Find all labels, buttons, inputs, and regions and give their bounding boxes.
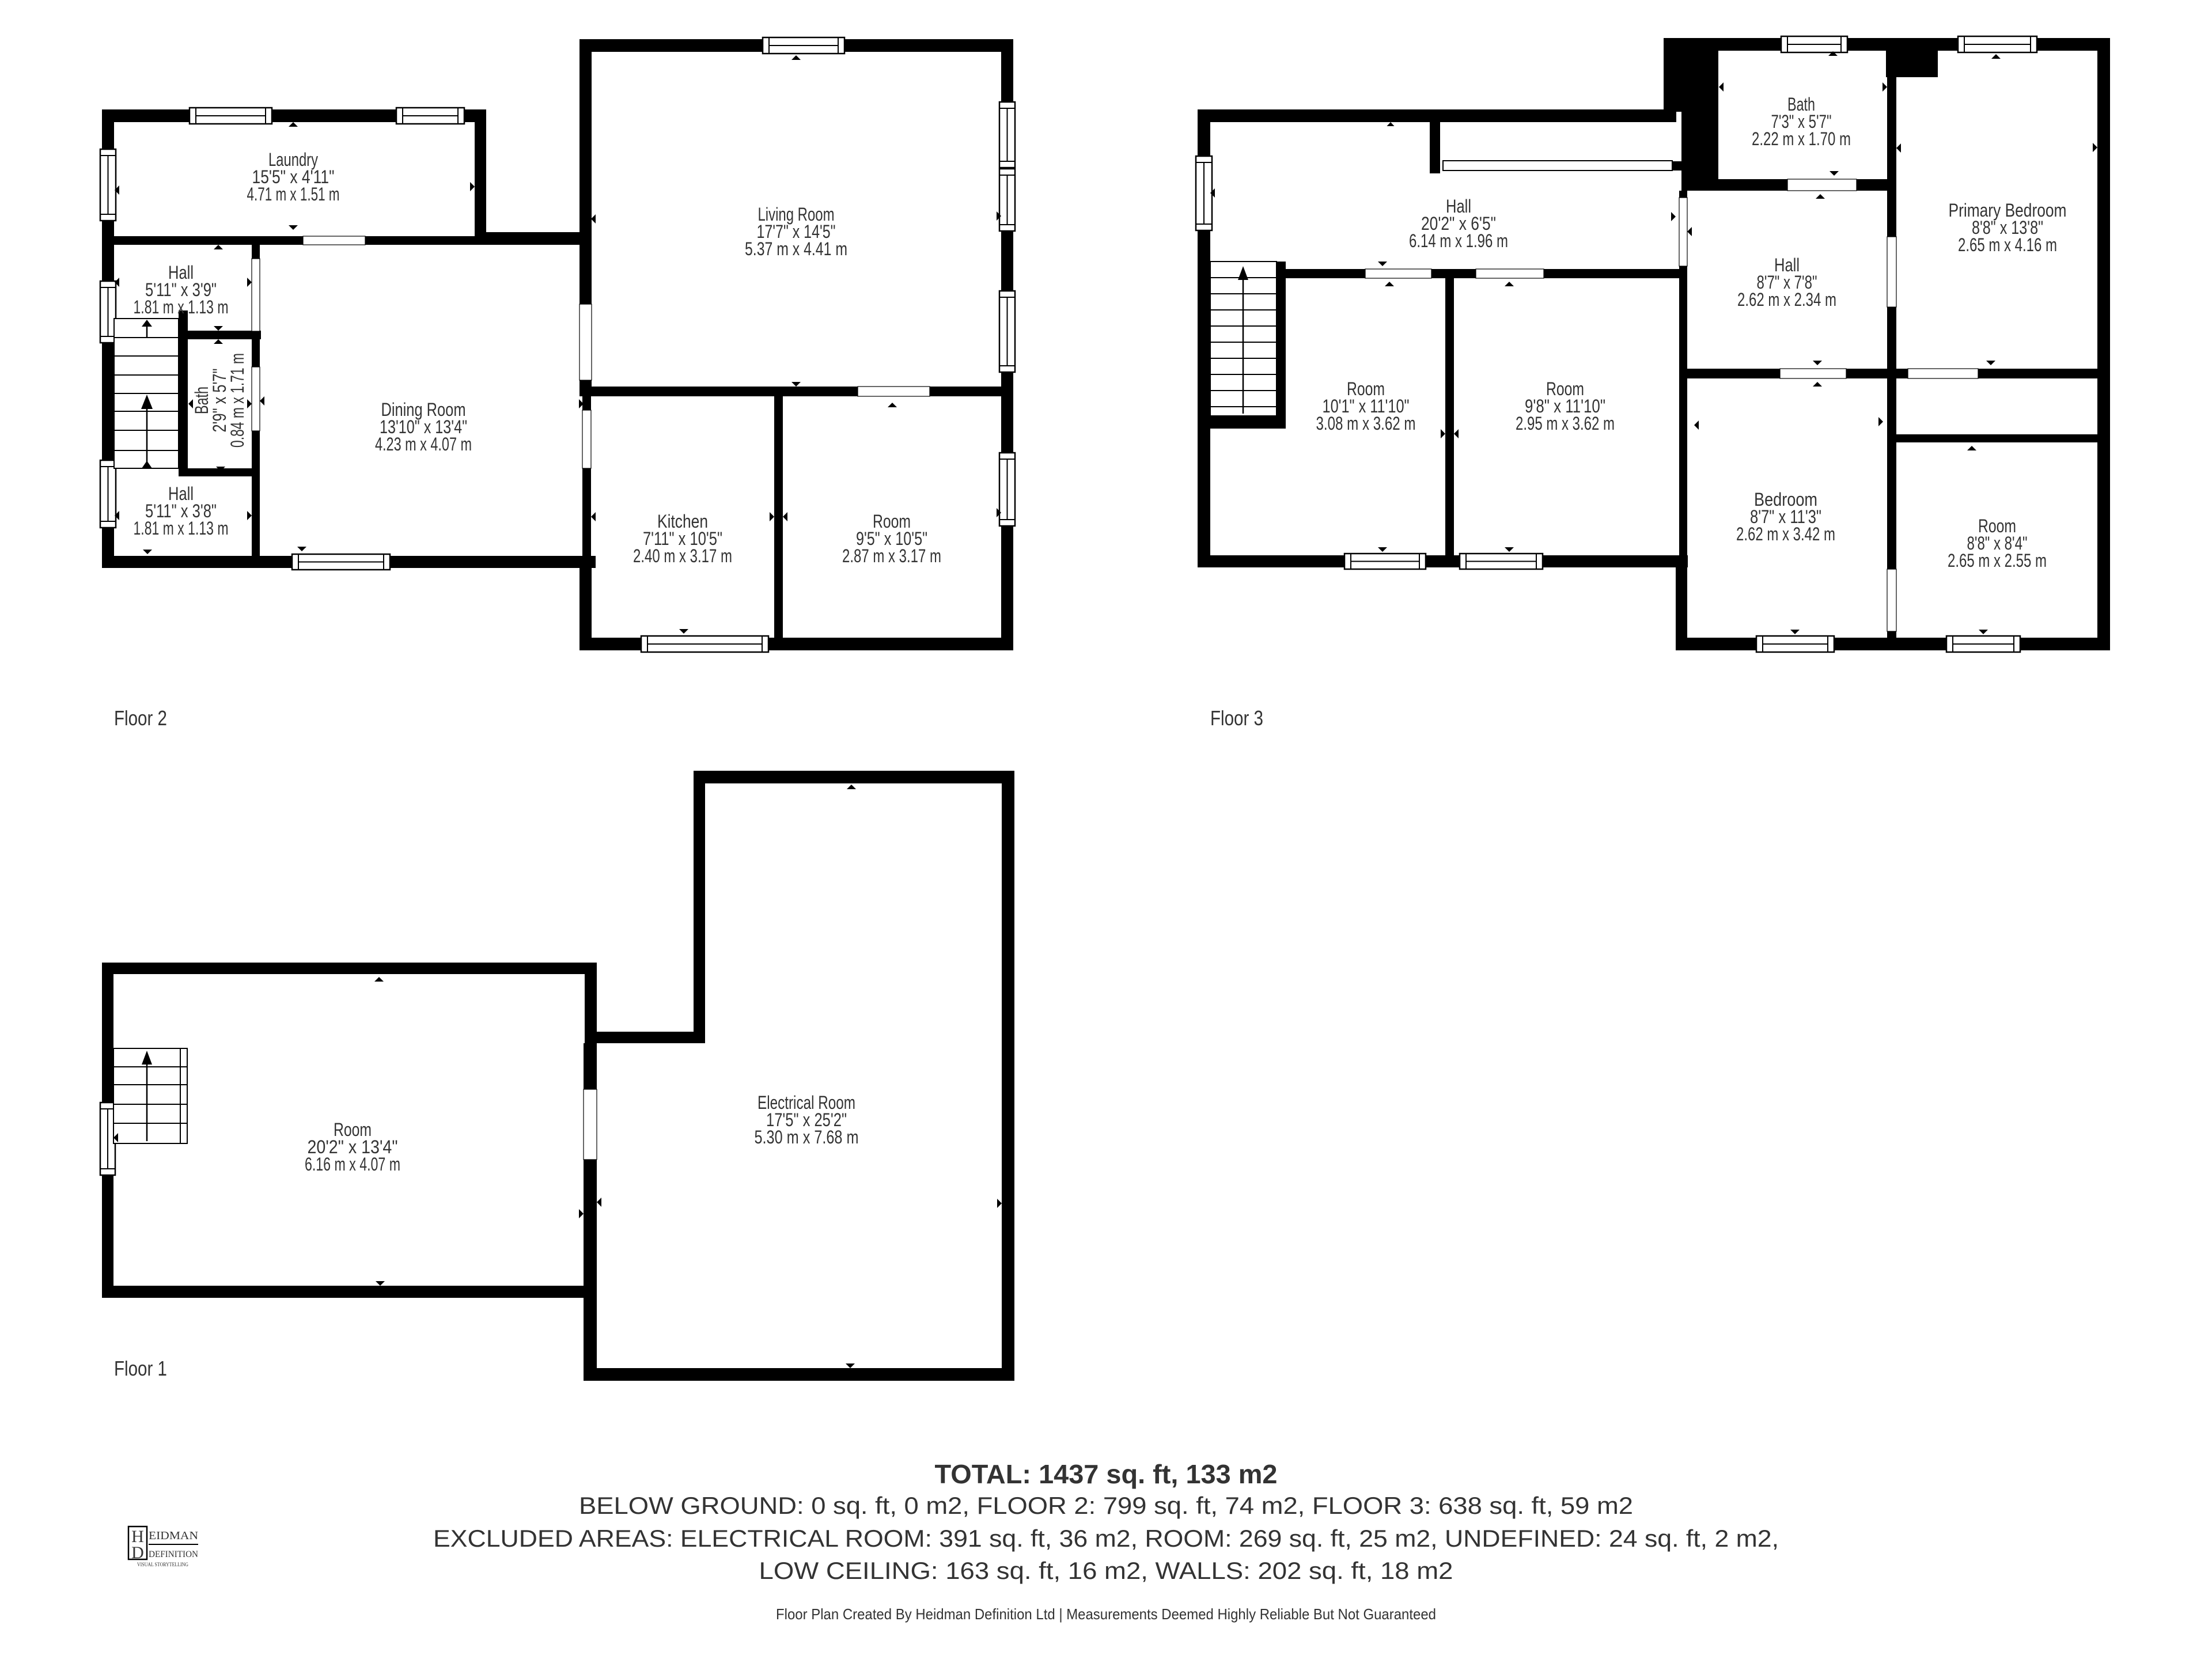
svg-text:2.62 m x 3.42 m: 2.62 m x 3.42 m — [1736, 524, 1835, 544]
svg-text:2.62 m x 2.34 m: 2.62 m x 2.34 m — [1737, 289, 1836, 310]
svg-text:5.30 m x 7.68 m: 5.30 m x 7.68 m — [755, 1127, 859, 1147]
svg-text:BELOW GROUND: 0 sq. ft, 0 m2,: BELOW GROUND: 0 sq. ft, 0 m2, FLOOR 2: 7… — [579, 1492, 1633, 1519]
svg-text:Floor 3: Floor 3 — [1210, 706, 1263, 730]
svg-text:4.71 m x 1.51 m: 4.71 m x 1.51 m — [247, 184, 340, 204]
svg-text:EXCLUDED AREAS: ELECTRICAL ROO: EXCLUDED AREAS: ELECTRICAL ROOM: 391 sq.… — [433, 1525, 1779, 1552]
svg-text:2.65 m x 4.16 m: 2.65 m x 4.16 m — [1958, 234, 2057, 255]
svg-text:2.65 m x 2.55 m: 2.65 m x 2.55 m — [1948, 550, 2047, 571]
svg-text:2.22 m x 1.70 m: 2.22 m x 1.70 m — [1752, 128, 1851, 149]
svg-text:1.81 m x 1.13 m: 1.81 m x 1.13 m — [134, 518, 229, 539]
svg-text:EIDMAN: EIDMAN — [149, 1529, 198, 1542]
svg-text:2.87 m x 3.17 m: 2.87 m x 3.17 m — [842, 546, 941, 566]
svg-text:2.95 m x 3.62 m: 2.95 m x 3.62 m — [1516, 413, 1615, 434]
svg-text:LOW CEILING: 163 sq. ft, 16 m2: LOW CEILING: 163 sq. ft, 16 m2, WALLS: 2… — [759, 1557, 1453, 1584]
svg-text:TOTAL: 1437 sq. ft, 133 m2: TOTAL: 1437 sq. ft, 133 m2 — [935, 1459, 1278, 1489]
svg-text:6.14 m x 1.96 m: 6.14 m x 1.96 m — [1409, 230, 1508, 251]
svg-text:DEFINITION: DEFINITION — [149, 1550, 198, 1559]
svg-text:6.16 m x 4.07 m: 6.16 m x 4.07 m — [305, 1154, 400, 1175]
svg-text:1.81 m x 1.13 m: 1.81 m x 1.13 m — [134, 297, 229, 317]
svg-text:Floor 1: Floor 1 — [114, 1357, 167, 1380]
svg-text:D: D — [131, 1543, 144, 1562]
svg-text:2.40 m x 3.17 m: 2.40 m x 3.17 m — [633, 546, 732, 566]
svg-text:3.08 m x 3.62 m: 3.08 m x 3.62 m — [1316, 413, 1416, 434]
svg-text:Floor Plan Created By Heidman: Floor Plan Created By Heidman Definition… — [776, 1605, 1436, 1623]
svg-text:5.37 m x 4.41 m: 5.37 m x 4.41 m — [745, 238, 847, 259]
svg-text:0.84 m x 1.71 m: 0.84 m x 1.71 m — [227, 353, 248, 448]
svg-text:4.23 m x 4.07 m: 4.23 m x 4.07 m — [375, 434, 472, 454]
svg-text:VISUAL STORYTELLING: VISUAL STORYTELLING — [137, 1562, 188, 1567]
svg-text:Floor 2: Floor 2 — [114, 706, 167, 730]
